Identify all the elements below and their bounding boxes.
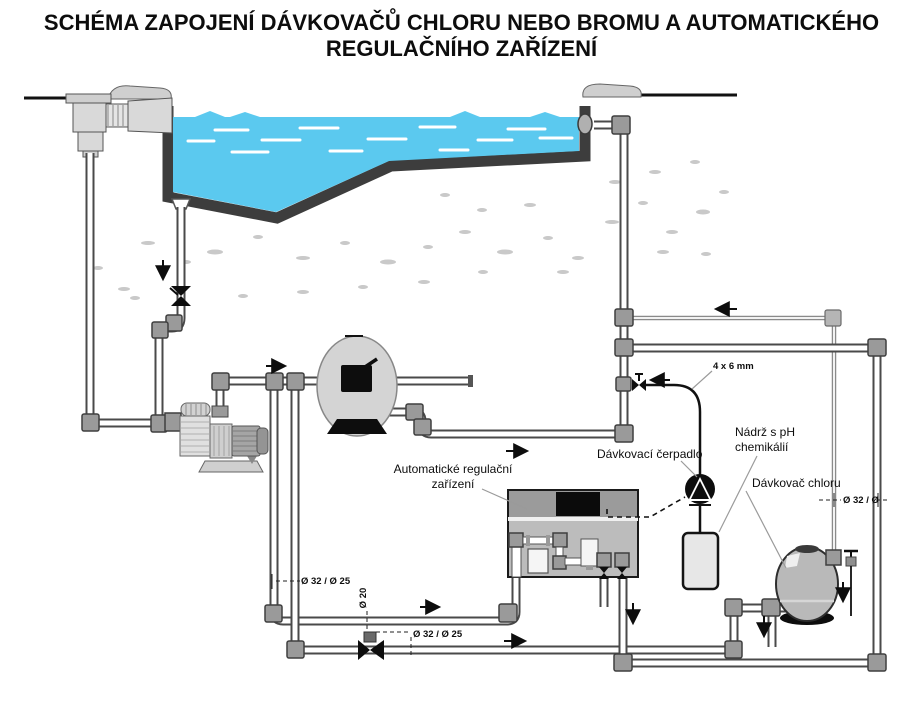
label-dim-bottom-pipe: Ø 32 / Ø 25 (413, 629, 463, 640)
electrode-holder (528, 549, 548, 573)
skimmer-body (73, 103, 106, 132)
label-dim-right-pipe: Ø 32 / Ø (843, 495, 879, 506)
pipe-end-cap (468, 375, 473, 387)
skimmer-flange (66, 94, 111, 103)
elbow-fitting (414, 419, 431, 435)
elbow-fitting (82, 414, 99, 431)
tee-fitting (762, 599, 780, 616)
outlet-fitting (597, 553, 611, 567)
pump-base (199, 461, 263, 472)
filter-base (327, 419, 387, 434)
elbow-fitting (509, 533, 523, 547)
sand-filter (317, 336, 397, 436)
elbow-fitting (212, 373, 229, 390)
doser-cap (795, 545, 819, 553)
tee-fitting (615, 339, 633, 356)
elbow-fitting (553, 556, 566, 569)
pool-return-inlet (578, 114, 592, 134)
elbow-fitting (615, 425, 633, 442)
ph-chemical-tank (683, 533, 718, 589)
skimmer-wedge (128, 98, 172, 133)
label-tube-size: 4 x 6 mm (713, 361, 754, 372)
label-control-unit-line1: Automatické regulační (394, 462, 513, 476)
control-unit-display (556, 492, 600, 516)
leader-tube-size (692, 371, 712, 389)
sensor-foot (586, 566, 593, 570)
water-wave (450, 111, 480, 117)
motor-end-cap (257, 428, 268, 454)
leader-chlorine-doser (746, 491, 786, 568)
elbow-fitting (287, 641, 304, 658)
skimmer (66, 94, 172, 157)
tee-fitting (287, 373, 304, 390)
coping-stone-left (108, 86, 171, 99)
label-ph-tank-line2: chemikálií (735, 440, 789, 454)
capillary-tube (645, 385, 700, 475)
injection-fitting (616, 377, 631, 391)
tee-fitting (266, 373, 283, 390)
elbow-fitting (614, 654, 632, 671)
piping-schematic: 4 x 6 mm Dávkovací čerpadlo Nádrž s pH c… (0, 0, 923, 716)
label-dosing-pump: Dávkovací čerpadlo (597, 447, 703, 461)
skimmer-lower (78, 132, 103, 151)
doser-bleed-valve (844, 551, 858, 616)
coupling (546, 535, 550, 546)
label-ph-tank-line1: Nádrž s pH (735, 425, 795, 439)
elbow-fitting (725, 641, 742, 658)
label-dim-riser-pipes: Ø 32 / Ø 25 (301, 576, 351, 587)
pump-outlet-coupling (212, 406, 228, 417)
outlet-fitting (615, 553, 629, 567)
coupling (526, 535, 530, 546)
tee-fitting (615, 309, 633, 326)
label-chlorine-doser: Dávkovač chloru (752, 476, 841, 490)
chlorine-doser (776, 545, 858, 625)
multiport-valve (341, 365, 372, 392)
flow-cell-inlet-pipe (512, 546, 521, 577)
pipe-sample-return-line (623, 348, 877, 663)
water-wave (230, 112, 260, 117)
pump-inlet-union (165, 413, 181, 431)
elbow-fitting (868, 654, 886, 671)
sensor-cell (581, 539, 598, 566)
leader-dosing-pump (681, 461, 697, 477)
elbow-fitting (725, 599, 742, 616)
tee-fitting (553, 533, 567, 547)
elbow-fitting (825, 310, 841, 326)
elbow-fitting (406, 404, 423, 420)
elbow-fitting (265, 605, 282, 622)
label-dim-bypass: Ø 20 (358, 588, 369, 609)
injection-check-valve (632, 374, 646, 391)
pipe-doser-return-line (630, 318, 834, 556)
elbow-fitting (868, 339, 886, 356)
schematic-page: SCHÉMA ZAPOJENÍ DÁVKOVAČŮ CHLORU NEBO BR… (0, 0, 923, 716)
water-wave (195, 111, 225, 117)
elbow-fitting (499, 604, 517, 622)
elbow-fitting (612, 116, 630, 134)
control-unit (508, 490, 638, 579)
doser-outlet-tee (826, 550, 841, 565)
elbow-fitting (152, 322, 168, 338)
leader-ph-tank (719, 456, 757, 532)
circulation-pump (165, 403, 268, 472)
water-wave (530, 112, 560, 117)
label-control-unit-line2: zařízení (432, 477, 475, 491)
coping-stone-right (583, 84, 641, 97)
